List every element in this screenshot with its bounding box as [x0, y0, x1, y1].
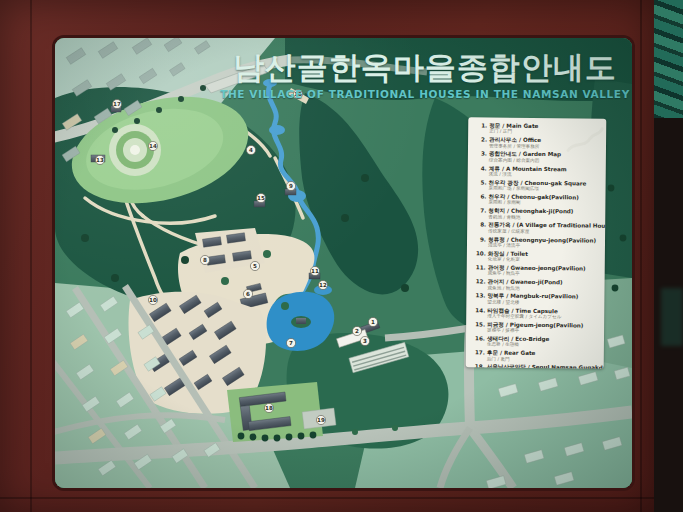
legend-item-number: 11.	[475, 264, 488, 276]
map-marker: 16	[293, 89, 302, 98]
legend-item: 9. 청류정 / Cheongnyu-jeong(Pavilion) 清流亭 /…	[475, 236, 599, 249]
frame-seam	[0, 497, 654, 499]
legend-item-number: 5.	[476, 179, 489, 191]
legend-item: 15. 피금정 / Pigeum-jeong(Pavilion) 披襟亭 / 披…	[474, 321, 598, 334]
marker-number: 7	[289, 340, 293, 346]
map-marker: 7	[286, 338, 295, 347]
legend-item-secondary: 溪流 / 渓流	[489, 172, 567, 178]
plaza-center	[130, 145, 140, 155]
legend-item-secondary: 综合案内图 / 総合案内図	[489, 157, 561, 163]
legend-item-secondary: 正门 / 正門	[489, 129, 538, 135]
map-marker: 12	[318, 280, 327, 289]
legend-item-number: 15.	[474, 321, 487, 333]
map-marker: 15	[256, 193, 265, 202]
temple-eave-reflection	[661, 288, 683, 346]
map-marker: 3	[360, 336, 369, 345]
legend-item-number: 13.	[474, 293, 487, 305]
marker-number: 16	[294, 91, 302, 97]
legend-item-secondary: 传统家屋 / 伝統家屋	[488, 228, 606, 235]
legend-item-number: 17.	[474, 350, 487, 362]
legend-list: 1. 정문 / Main Gate 正门 / 正門 2. 관리사무소 / Off…	[473, 122, 600, 368]
temple-eave-decoration	[652, 0, 683, 118]
legend-item-number: 7.	[475, 208, 488, 220]
legend-item: 17. 후문 / Rear Gate 后门 / 裏門	[474, 350, 598, 363]
marker-number: 19	[317, 417, 325, 423]
legend-item-secondary: 观鱼池 / 観魚池	[488, 285, 563, 291]
map-marker: 9	[286, 181, 295, 190]
map-marker: 14	[148, 141, 157, 150]
marker-number: 6	[246, 291, 250, 297]
legend-item-number: 9.	[475, 236, 488, 248]
legend-item-secondary: 披襟亭 / 披襟亭	[487, 328, 583, 334]
marker-number: 3	[363, 338, 367, 344]
marker-number: 5	[253, 263, 257, 269]
legend-item: 13. 망북루 / Mangbuk-ru(Pavilion) 望北楼 / 望北楼	[474, 293, 598, 306]
frame-seam	[640, 0, 642, 512]
legend-item-number: 4.	[476, 165, 489, 177]
legend-item: 8. 전통가옥 / (A Village of Traditional Hous…	[475, 222, 599, 235]
marker-number: 4	[249, 147, 253, 153]
marker-number: 1	[371, 319, 375, 325]
map-marker: 11	[310, 266, 319, 275]
frame-seam	[30, 0, 32, 512]
legend-item-number: 10.	[475, 250, 488, 262]
legend-item-number: 2.	[476, 137, 489, 149]
legend-item-secondary: 管理事务所 / 管理事務所	[489, 143, 541, 149]
map-marker: 1	[368, 317, 377, 326]
legend-item-secondary: 望北楼 / 望北楼	[487, 299, 578, 305]
legend-item: 11. 관어정 / Gwaneo-jeong(Pavilion) 观鱼亭 / 観…	[475, 264, 599, 277]
marker-number: 17	[113, 101, 121, 107]
marker-number: 9	[289, 183, 293, 189]
marker-number: 18	[265, 405, 273, 411]
map-marker: 8	[200, 255, 209, 264]
legend-item: 1. 정문 / Main Gate 正门 / 正門	[476, 122, 600, 135]
legend-item-secondary: 生态桥 / 生態橋	[487, 342, 549, 348]
map-marker: 17	[112, 99, 121, 108]
marker-number: 12	[319, 282, 327, 288]
photo-of-sign: 1 2 3 4 5 6 7	[0, 0, 683, 512]
map-marker: 6	[243, 289, 252, 298]
map-marker: 18	[264, 403, 273, 412]
marker-number: 10	[149, 297, 157, 303]
map-marker: 10	[148, 295, 157, 304]
legend-item: 3. 종합안내도 / Garden Map 综合案内图 / 総合案内図	[476, 151, 600, 164]
legend-item-number: 1.	[476, 122, 489, 134]
legend-item-number: 16.	[474, 335, 487, 347]
legend-item-secondary: 埋入千年时空胶囊 / タイムカプセル	[487, 314, 561, 320]
legend-panel: 1. 정문 / Main Gate 正门 / 正門 2. 관리사무소 / Off…	[466, 117, 607, 368]
legend-item: 6. 천우각 / Cheonu-gak(Pavilion) 泉雨阁 / 泉雨閣	[475, 193, 599, 206]
legend-item-secondary: 泉雨阁 / 泉雨閣	[488, 200, 578, 206]
legend-item: 10. 화장실 / Toilet 化妆室 / 化粧室	[475, 250, 599, 263]
marker-number: 2	[355, 328, 359, 334]
legend-item-secondary: 泉雨阁广场 / 泉雨閣広場	[489, 186, 587, 192]
legend-item-secondary: 后门 / 裏門	[487, 356, 536, 362]
legend-item-number: 6.	[475, 193, 488, 205]
legend-item: 2. 관리사무소 / Office 管理事务所 / 管理事務所	[476, 137, 600, 150]
legend-item-secondary: 清流亭 / 清流亭	[488, 243, 596, 249]
legend-item: 5. 천우각 광장 / Cheonu-gak Square 泉雨阁广场 / 泉雨…	[476, 179, 600, 192]
legend-item: 12. 관어지 / Gwaneo-ji(Pond) 观鱼池 / 観魚池	[475, 279, 599, 292]
island-pavilion	[296, 318, 306, 324]
legend-item-number: 3.	[476, 151, 489, 163]
marker-number: 13	[96, 157, 104, 163]
marker-number: 11	[311, 268, 319, 274]
legend-item-number: 14.	[474, 307, 487, 319]
map-marker: 4	[246, 145, 255, 154]
legend-item-secondary: 化妆室 / 化粧室	[488, 257, 528, 263]
marker-number: 8	[203, 257, 207, 263]
map-marker: 19	[316, 415, 325, 424]
map-marker: 5	[250, 261, 259, 270]
marker-number: 14	[149, 143, 157, 149]
map-marker: 13	[95, 155, 104, 164]
marker-number: 15	[257, 195, 265, 201]
legend-item: 16. 생태다리 / Eco-Bridge 生态桥 / 生態橋	[474, 335, 598, 348]
sign-board: 1 2 3 4 5 6 7	[55, 38, 632, 488]
legend-item: 7. 청학지 / Cheonghak-ji(Pond) 青鹤池 / 青鶴池	[475, 208, 599, 221]
legend-item-secondary: 青鹤池 / 青鶴池	[488, 214, 573, 220]
legend-item: 4. 계류 / A Mountain Stream 溪流 / 渓流	[476, 165, 600, 178]
map-marker: 2	[352, 326, 361, 335]
legend-item-number: 8.	[475, 222, 488, 234]
legend-item-secondary: 观鱼亭 / 観魚亭	[488, 271, 586, 277]
legend-item: 14. 타임캡슐 / Time Capsule 埋入千年时空胶囊 / タイムカプ…	[474, 307, 598, 320]
legend-item-number: 12.	[475, 279, 488, 291]
